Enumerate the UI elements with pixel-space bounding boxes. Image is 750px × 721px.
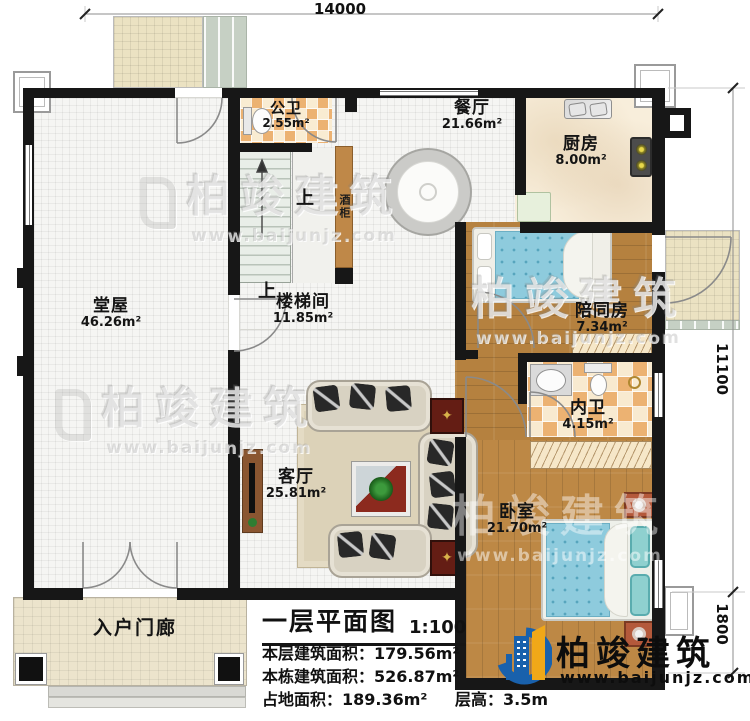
vanity-basin [536, 369, 566, 392]
up-label-2: 上 [258, 277, 276, 303]
room-area: 7.34m² [552, 321, 652, 336]
companion-bed-pillow [477, 233, 492, 260]
brand-site: www.baijunjz.com [560, 668, 750, 687]
sofa-cushion [426, 438, 455, 467]
entry-step-1 [48, 686, 246, 697]
wall [228, 350, 240, 588]
room-label-tangwu: 堂屋 46.26m² [61, 297, 161, 331]
sofa-cushion [429, 471, 457, 499]
wall [652, 272, 665, 373]
toilet2-bowl [590, 374, 607, 396]
room-area: 8.00m² [531, 154, 631, 169]
companion-bed-blanket [563, 231, 593, 299]
wall-pilaster [17, 268, 23, 288]
stat-land-area: 占地面积：189.36m² [262, 690, 427, 709]
sofa-cushion [368, 532, 396, 560]
room-label-canting: 餐厅 21.66m² [422, 99, 522, 133]
room-area: 4.15m² [538, 418, 638, 433]
plan-title: 一层平面图 [262, 602, 397, 638]
wall [23, 98, 34, 145]
wall [455, 222, 466, 360]
nightstand-lamp [632, 498, 646, 512]
sofa-cushion [427, 503, 454, 530]
sofa-cushion [337, 531, 364, 558]
room-area: 11.85m² [253, 312, 353, 327]
porch-column-right [215, 654, 243, 684]
stat-building-area: 本栋建筑面积：526.87m² [262, 663, 459, 687]
dimension-right-upper-label: 11100 [713, 334, 731, 404]
entry-porch-floor [13, 597, 247, 686]
wall [228, 143, 312, 152]
room-area: 21.66m² [422, 118, 522, 133]
sink-basin [589, 102, 608, 117]
stat-floor-height: 层高：3.5m [455, 690, 548, 709]
wall [228, 98, 240, 295]
side-table: ✦ [430, 398, 464, 434]
room-name: 公卫 [246, 100, 326, 117]
sink-basin [568, 102, 587, 117]
room-label-woshi: 卧室 21.70m² [467, 503, 567, 537]
headboard-cushion [630, 526, 650, 568]
burner [636, 160, 647, 171]
wall [652, 417, 665, 560]
room-area: 25.81m² [246, 487, 346, 502]
dining-table-center [419, 183, 437, 201]
dimension-tick [653, 9, 663, 19]
dimension-tick [80, 9, 90, 19]
top-patio-steps [203, 16, 247, 88]
wall [518, 353, 652, 362]
toilet2-tank [584, 363, 612, 373]
entry-step-2 [48, 697, 246, 708]
porch-column-left [16, 654, 46, 684]
room-name: 堂屋 [61, 297, 161, 316]
wall [520, 222, 665, 233]
window-dining [380, 88, 478, 98]
side-porch-step [665, 320, 740, 330]
nightstand [624, 492, 654, 518]
room-area: 2.55m² [246, 117, 326, 130]
plan-scale: 1:100 [409, 617, 466, 638]
room-area: 21.70m² [467, 522, 567, 537]
floor-plan-canvas: 酒柜 ✦ ✦ [0, 0, 750, 721]
room-label-gongwei: 公卫 2.55m² [246, 100, 326, 130]
sofa-cushion [349, 383, 376, 410]
room-name: 入户门廊 [55, 618, 215, 639]
wall [23, 588, 83, 600]
top-patio [113, 16, 203, 88]
room-label-keting: 客厅 25.81m² [246, 468, 346, 502]
room-name: 内卫 [538, 399, 638, 418]
dimension-tick [728, 83, 738, 93]
room-name: 餐厅 [422, 99, 522, 118]
sofa-cushion [312, 384, 340, 412]
burner [636, 144, 647, 155]
room-label-neiwei: 内卫 4.15m² [538, 399, 638, 433]
wine-cabinet-label: 酒柜 [336, 194, 352, 220]
room-name: 客厅 [246, 468, 346, 487]
companion-wardrobe [572, 333, 652, 355]
kitchen-cabinet [517, 192, 551, 222]
kitchen-sink [564, 99, 612, 119]
wall-pilaster [17, 356, 23, 376]
wall [23, 225, 34, 588]
wall [23, 88, 175, 98]
companion-bed-pillow [477, 266, 492, 293]
window-tangwu [23, 145, 34, 225]
up-label-1: 上 [296, 184, 314, 210]
wall [518, 362, 527, 404]
room-area: 46.26m² [61, 316, 161, 331]
staircase [237, 148, 291, 283]
dimension-top-label: 14000 [300, 0, 380, 18]
wall [455, 350, 478, 359]
wall [177, 588, 466, 600]
master-bed-mattress [546, 523, 610, 617]
headboard-cushion [630, 574, 650, 616]
sofa-cushion [385, 385, 412, 412]
side-porch [665, 230, 740, 330]
kitchen-flue [663, 108, 691, 138]
towel-ring [628, 376, 641, 389]
tv-plant [248, 518, 257, 527]
vanity-counter [530, 364, 572, 396]
stat-floor-area: 本层建筑面积：179.56m² [262, 640, 459, 664]
wall [345, 88, 357, 112]
stove [630, 137, 652, 177]
room-name: 卧室 [467, 503, 567, 522]
room-label-chufang: 厨房 8.00m² [531, 135, 631, 169]
brand-logo-icon [492, 620, 552, 692]
wine-cabinet-base [335, 268, 353, 284]
wine-cabinet: 酒柜 [335, 146, 353, 268]
room-label-peitongfang: 陪同房 7.34m² [552, 302, 652, 336]
table-plant [369, 477, 393, 501]
room-label-menlang: 入户门廊 [55, 618, 215, 639]
wall [478, 88, 665, 98]
room-name: 厨房 [531, 135, 631, 154]
tangwu-floor [34, 98, 228, 588]
window-bedroom [652, 560, 665, 608]
window-neiwei [652, 373, 665, 417]
room-name: 陪同房 [552, 302, 652, 321]
master-bed-blanket [604, 523, 628, 617]
bedroom-closet [530, 441, 652, 469]
